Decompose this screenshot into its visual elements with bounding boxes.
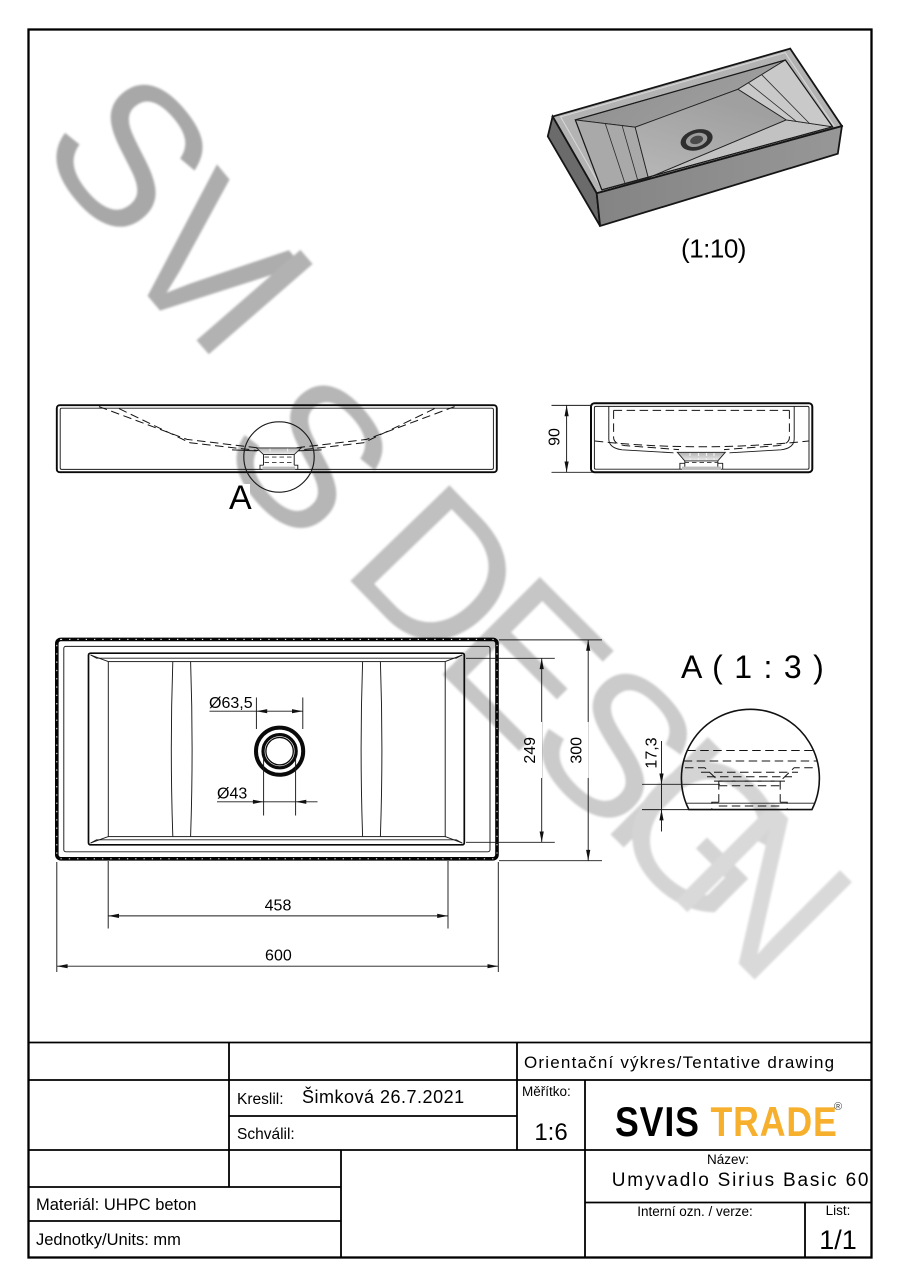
svg-text:Interní ozn. / verze:: Interní ozn. / verze: xyxy=(637,1204,753,1219)
svg-text:1:6: 1:6 xyxy=(534,1119,567,1146)
svg-text:A ( 1 : 3 ): A ( 1 : 3 ) xyxy=(681,649,825,685)
svg-text:Schválil:: Schválil: xyxy=(237,1126,295,1143)
svg-text:Ø63,5: Ø63,5 xyxy=(209,695,253,712)
svg-text:17,3: 17,3 xyxy=(644,737,661,768)
svg-text:300: 300 xyxy=(569,737,586,764)
svg-text:Materiál: UHPC beton: Materiál: UHPC beton xyxy=(36,1196,196,1214)
svg-text:Jednotky/Units: mm: Jednotky/Units: mm xyxy=(36,1231,181,1249)
svg-text:A: A xyxy=(229,479,252,517)
svg-text:Orientační výkres/Tentative dr: Orientační výkres/Tentative drawing xyxy=(524,1053,835,1072)
svg-text:Měřítko:: Měřítko: xyxy=(522,1084,571,1099)
svg-text:Ø43: Ø43 xyxy=(217,786,247,803)
svg-text:List:: List: xyxy=(826,1203,851,1218)
svg-text:249: 249 xyxy=(522,737,539,764)
svg-text:Název:: Název: xyxy=(707,1152,749,1167)
svg-text:458: 458 xyxy=(265,898,292,915)
svg-text:Umyvadlo Sirius Basic 60: Umyvadlo Sirius Basic 60 xyxy=(612,1170,871,1191)
svg-text:90: 90 xyxy=(547,428,564,446)
svg-text:Šimková 26.7.2021: Šimková 26.7.2021 xyxy=(302,1086,465,1107)
svg-text:1/1: 1/1 xyxy=(819,1225,857,1255)
svg-text:600: 600 xyxy=(265,947,292,964)
svg-text:®: ® xyxy=(834,1101,842,1113)
svg-text:SVIS TRADE: SVIS TRADE xyxy=(615,1099,838,1145)
svg-text:(1:10): (1:10) xyxy=(681,234,746,264)
svg-text:Kreslil:: Kreslil: xyxy=(237,1091,284,1108)
